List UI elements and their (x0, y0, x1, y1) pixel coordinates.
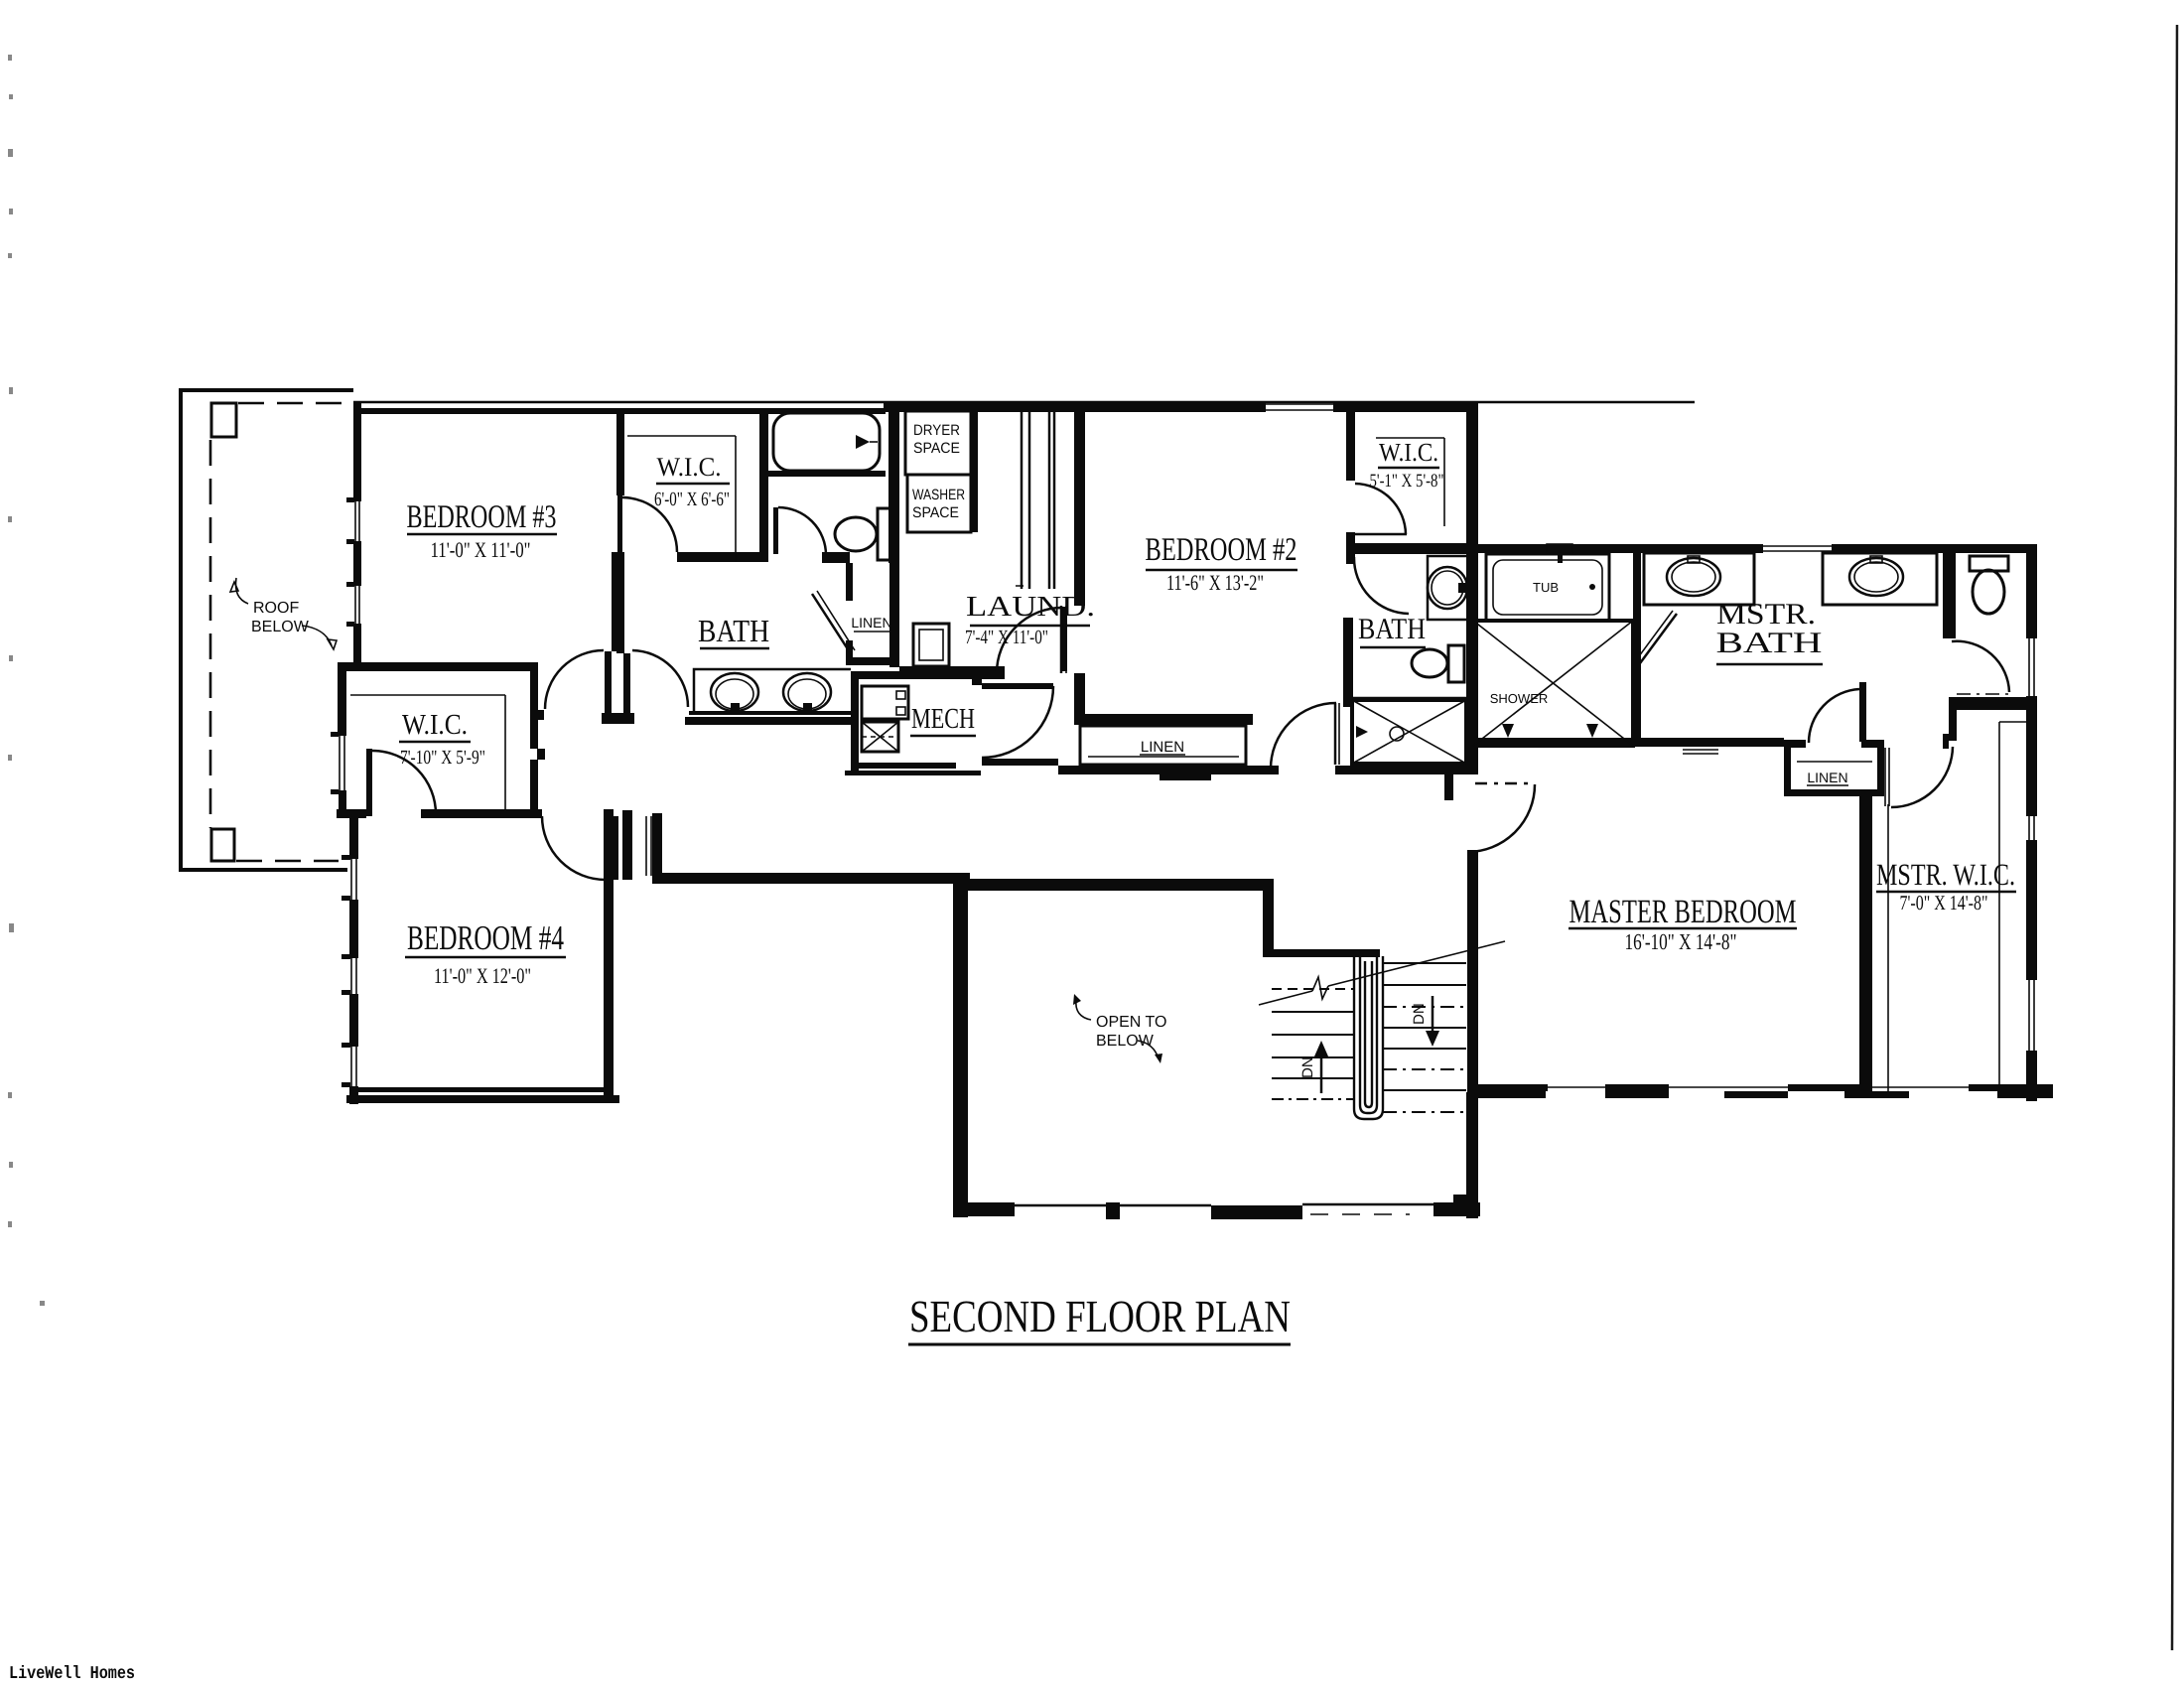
svg-text:W.I.C.: W.I.C. (1379, 438, 1438, 467)
svg-text:SECOND FLOOR PLAN: SECOND FLOOR PLAN (909, 1291, 1291, 1341)
svg-text:DN: DN (1411, 1003, 1428, 1025)
svg-text:TUB: TUB (1533, 580, 1559, 595)
svg-text:DN: DN (1299, 1056, 1316, 1078)
svg-text:SHOWER: SHOWER (1490, 691, 1549, 706)
svg-text:BELOW: BELOW (251, 619, 310, 635)
svg-text:BATH: BATH (1358, 613, 1426, 645)
svg-text:6'-0" X 6'-6": 6'-0" X 6'-6" (654, 489, 730, 510)
svg-text:DRYER: DRYER (913, 422, 960, 439)
svg-text:BEDROOM #3: BEDROOM #3 (407, 499, 557, 535)
svg-text:SPACE: SPACE (913, 440, 960, 457)
svg-text:LINEN: LINEN (1141, 739, 1184, 756)
svg-text:11'-0" X 12'-0": 11'-0" X 12'-0" (434, 963, 531, 988)
svg-text:5'-1" X 5'-8": 5'-1" X 5'-8" (1370, 471, 1444, 492)
svg-text:7'-0" X 14'-8": 7'-0" X 14'-8" (1900, 891, 1988, 914)
svg-text:LINEN: LINEN (851, 615, 891, 631)
svg-text:BEDROOM #2: BEDROOM #2 (1146, 532, 1297, 568)
svg-text:BATH: BATH (698, 613, 769, 648)
svg-text:SPACE: SPACE (912, 504, 959, 521)
svg-text:LINEN: LINEN (1807, 770, 1847, 785)
svg-text:BATH: BATH (1716, 627, 1823, 659)
svg-text:LiveWell Homes: LiveWell Homes (9, 1664, 135, 1684)
svg-text:WASHER: WASHER (912, 487, 965, 503)
svg-text:11'-0" X 11'-0": 11'-0" X 11'-0" (431, 537, 531, 562)
svg-text:MECH: MECH (911, 703, 975, 735)
svg-text:OPEN TO: OPEN TO (1096, 1014, 1166, 1031)
svg-text:ROOF: ROOF (253, 600, 299, 617)
svg-text:MSTR. W.I.C.: MSTR. W.I.C. (1876, 857, 2015, 892)
svg-text:11'-6" X 13'-2": 11'-6" X 13'-2" (1166, 570, 1264, 595)
svg-text:W.I.C.: W.I.C. (402, 709, 468, 741)
svg-text:BEDROOM #4: BEDROOM #4 (407, 918, 564, 957)
svg-text:BELOW: BELOW (1096, 1033, 1155, 1050)
svg-text:MASTER BEDROOM: MASTER BEDROOM (1570, 894, 1797, 930)
svg-text:16'-10" X 14'-8": 16'-10" X 14'-8" (1625, 929, 1737, 954)
svg-text:W.I.C.: W.I.C. (657, 452, 722, 482)
